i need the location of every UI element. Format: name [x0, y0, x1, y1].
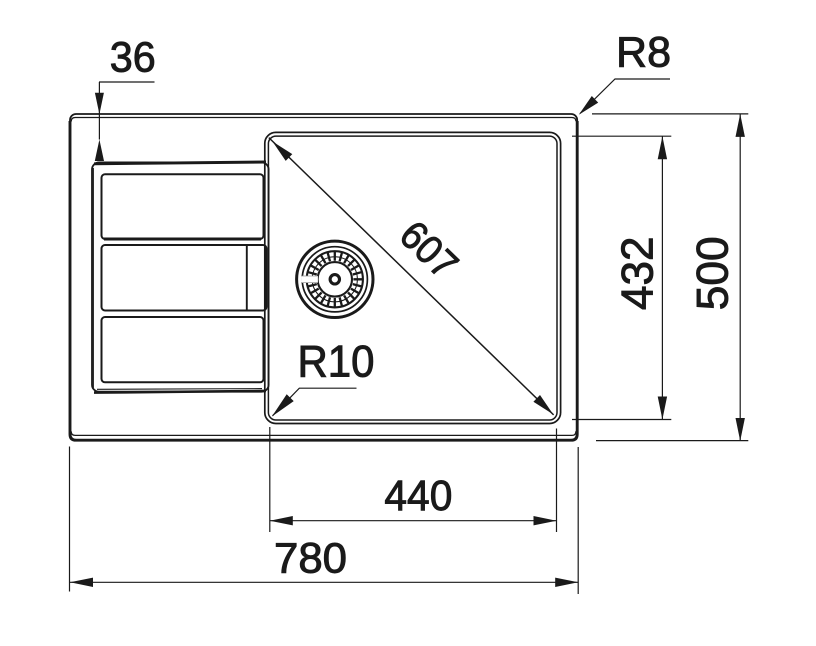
svg-text:R8: R8 [616, 29, 671, 77]
svg-text:36: 36 [110, 34, 156, 82]
svg-text:500: 500 [688, 236, 737, 310]
svg-text:432: 432 [613, 236, 662, 310]
svg-text:440: 440 [384, 472, 452, 520]
svg-text:780: 780 [274, 535, 347, 583]
svg-text:R10: R10 [298, 337, 375, 386]
